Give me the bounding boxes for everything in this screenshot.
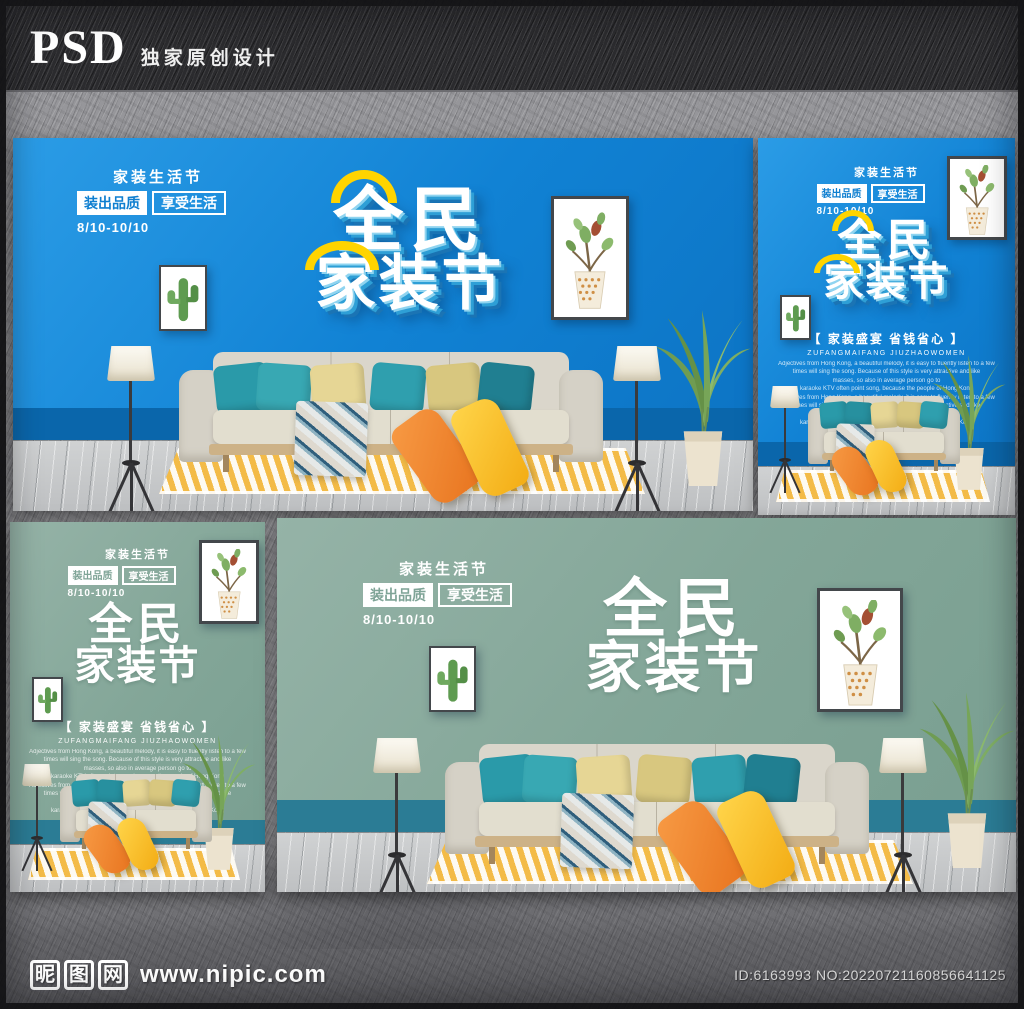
lamp-shade	[613, 346, 661, 381]
site-url: www.nipic.com	[140, 961, 327, 989]
title-text-2: 家装节	[75, 644, 201, 688]
site-logo-char: 图	[64, 960, 94, 990]
poster-header: 家装生活节 装出品质 享受生活 8/10-10/10	[68, 546, 208, 599]
palm-plant-icon	[647, 288, 753, 490]
poster-blue-portrait: 家装生活节 装出品质 享受生活 8/10-10/10 全民 家装节 【 家装盛宴…	[758, 138, 1015, 515]
quality-badge: 装出品质	[68, 566, 118, 585]
quality-badge: 装出品质	[817, 184, 867, 203]
main-title: 全民 家装节	[758, 218, 1015, 303]
sofa-pillow	[122, 779, 152, 807]
poster-green-landscape: 家装生活节 装出品质 享受生活 8/10-10/10 全民 家装节	[277, 518, 1016, 892]
cactus-icon	[36, 682, 59, 720]
design-preview-canvas: PSD 独家原创设计 家装生活节 装出品质 享受生活 8/10-10/10 全民…	[0, 0, 1024, 1009]
poster-blue-landscape: 家装生活节 装出品质 享受生活 8/10-10/10 全民 家装节	[13, 138, 753, 511]
lamp-leg	[36, 838, 38, 871]
floor-lamp	[373, 738, 421, 878]
sofa	[445, 740, 869, 870]
sofa-leg	[553, 455, 559, 472]
lamp-pole	[635, 381, 638, 463]
main-title: 全民 家装节	[569, 576, 779, 697]
sofa-leg	[186, 838, 190, 849]
sofa-leg	[223, 455, 229, 472]
cactus-icon	[164, 272, 202, 329]
date-range: 8/10-10/10	[77, 220, 239, 235]
floor-lamp	[613, 346, 661, 486]
title-line-1: 全民	[758, 218, 1015, 264]
festival-title: 家装生活节	[817, 164, 957, 180]
floor-lamp	[107, 346, 155, 486]
site-logo-char: 网	[98, 960, 128, 990]
badge-row: 装出品质 享受生活	[68, 566, 208, 585]
badge-row: 装出品质 享受生活	[77, 191, 239, 215]
poster-green-portrait: 家装生活节 装出品质 享受生活 8/10-10/10 全民 家装节 【 家装盛宴…	[10, 522, 265, 892]
floor-lamp	[879, 738, 927, 878]
floor-lamp	[22, 764, 52, 879]
title-line-2: 家装节	[569, 639, 779, 697]
date-range: 8/10-10/10	[68, 588, 208, 599]
lamp-shade	[22, 764, 52, 786]
title-line-1: 全民	[10, 602, 265, 648]
watermark-bar: 昵 图 网 www.nipic.com ID:6163993 NO:202207…	[30, 953, 1006, 997]
quality-badge: 装出品质	[363, 583, 433, 607]
poster-header: 家装生活节 装出品质 享受生活 8/10-10/10	[77, 166, 239, 235]
sofa	[179, 348, 603, 478]
plant-frame	[817, 588, 903, 712]
plant-frame	[551, 196, 629, 320]
festival-title: 家装生活节	[363, 558, 525, 579]
lamp-leg	[636, 463, 639, 511]
sofa-pillow	[919, 401, 950, 430]
lamp-shade	[770, 386, 800, 408]
sofa-pillow	[870, 401, 900, 429]
badge-row: 装出品质 享受生活	[817, 184, 957, 203]
enjoy-badge: 享受生活	[871, 184, 925, 203]
top-dark-band: PSD 独家原创设计	[6, 6, 1018, 92]
poster-header: 家装生活节 装出品质 享受生活 8/10-10/10	[363, 558, 525, 627]
title-line-1: 全民	[569, 576, 779, 643]
sofa-pillow	[369, 362, 427, 415]
cactus-icon	[434, 653, 471, 710]
sofa-pillow	[171, 779, 202, 808]
cactus-frame	[429, 646, 476, 712]
site-logo-char: 昵	[30, 960, 60, 990]
sofa-leg	[489, 847, 495, 864]
main-title: 全民 家装节	[285, 184, 535, 315]
quality-badge: 装出品质	[77, 191, 147, 215]
lamp-leg	[784, 460, 800, 494]
festival-title: 家装生活节	[77, 166, 239, 187]
festival-title: 家装生活节	[68, 546, 208, 562]
date-range: 8/10-10/10	[363, 612, 525, 627]
lamp-pole	[784, 408, 786, 460]
title-line-2: 家装节	[285, 253, 535, 315]
floor-lamp	[770, 386, 800, 501]
poster-header: 家装生活节 装出品质 享受生活 8/10-10/10	[817, 164, 957, 217]
cactus-frame	[159, 265, 207, 331]
title-line-2: 家装节	[758, 262, 1015, 304]
lamp-leg	[784, 460, 786, 493]
potted-plant-icon	[826, 600, 895, 709]
lamp-pole	[395, 773, 398, 855]
sofa-leg	[819, 847, 825, 864]
lamp-shade	[879, 738, 927, 773]
enjoy-badge: 享受生活	[152, 191, 226, 215]
lamp-shade	[107, 346, 155, 381]
title-line-2: 家装节	[10, 646, 265, 688]
potted-plant-icon	[559, 208, 621, 317]
title-text-2: 家装节	[586, 636, 763, 699]
lamp-pole	[36, 786, 38, 838]
enjoy-badge: 享受生活	[438, 583, 512, 607]
lamp-shade	[373, 738, 421, 773]
title-text-1: 全民	[603, 573, 745, 645]
enjoy-badge: 享受生活	[122, 566, 176, 585]
throw-blanket	[294, 401, 369, 477]
lamp-pole	[901, 773, 904, 855]
sofa-pillow	[635, 754, 693, 807]
psd-label: PSD	[30, 24, 127, 72]
banner-tagline: 独家原创设计	[141, 43, 279, 70]
lamp-leg	[36, 838, 52, 872]
throw-blanket	[560, 793, 635, 869]
badge-row: 装出品质 享受生活	[363, 583, 525, 607]
lamp-pole	[129, 381, 132, 463]
lamp-leg	[130, 463, 133, 511]
image-id-text: ID:6163993 NO:20220721160856641125	[734, 967, 1006, 983]
site-logo: 昵 图 网 www.nipic.com	[30, 960, 327, 990]
title-text-1: 全民	[89, 600, 187, 649]
sofa-leg	[934, 460, 938, 471]
main-title: 全民 家装节	[10, 602, 265, 687]
